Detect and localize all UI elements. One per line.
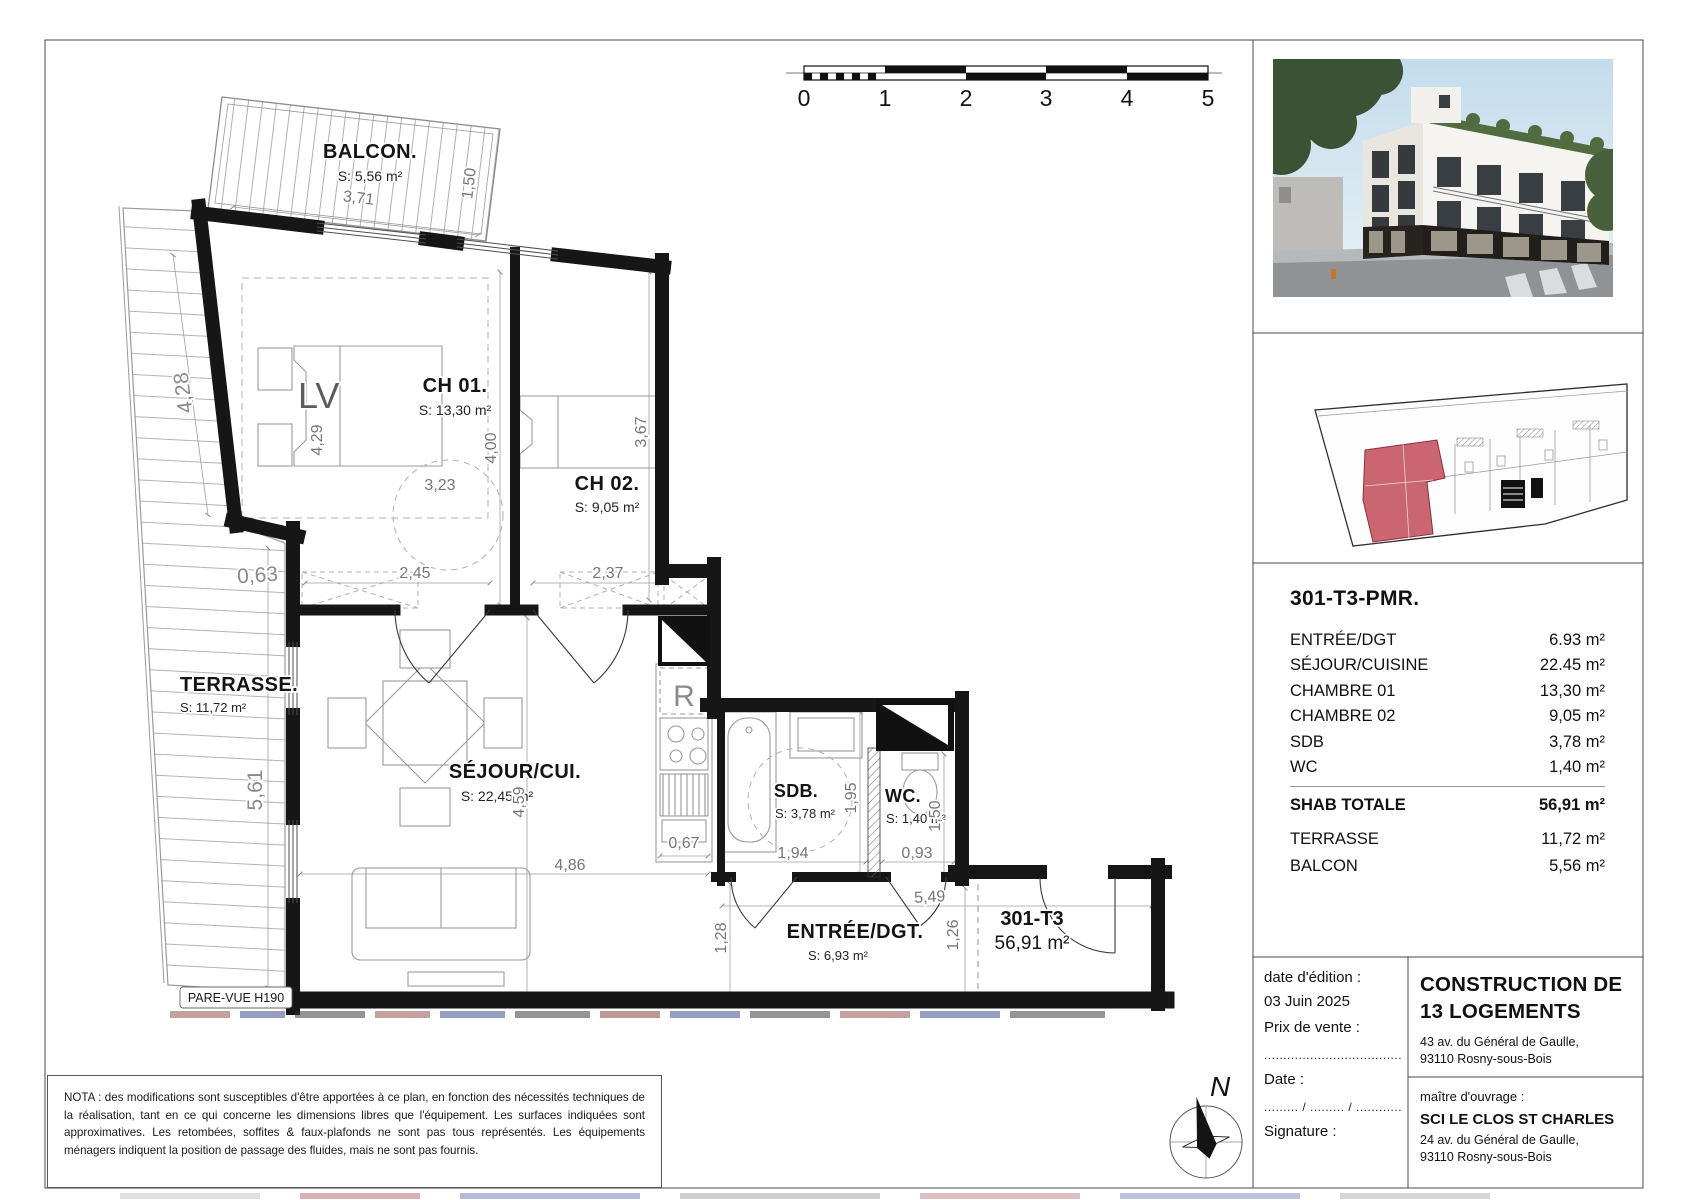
- key-plan-drawing: [1305, 382, 1630, 550]
- dim-terr-h: 5,61: [244, 770, 267, 811]
- dim-ch01-w: 3,23: [424, 477, 455, 494]
- project-title-line1: CONSTRUCTION DE: [1420, 971, 1635, 998]
- table-row: ENTRÉE/DGT 6.93 m²: [1290, 628, 1605, 653]
- room-area-ch01: S: 13,30 m²: [419, 402, 492, 418]
- dim-ch02-door: 2,37: [592, 565, 623, 582]
- dim-terr-jog: 0,63: [236, 563, 278, 589]
- titleblock-project: CONSTRUCTION DE 13 LOGEMENTS 43 av. du G…: [1408, 957, 1643, 1077]
- nota-box: NOTA : des modifications sont susceptibl…: [47, 1075, 662, 1188]
- area-table: 301-T3-PMR. ENTRÉE/DGT 6.93 m² SÉJOUR/CU…: [1253, 563, 1643, 957]
- room-label-balcon: BALCON.: [323, 141, 417, 163]
- table-divider: [1290, 786, 1605, 787]
- owner-address-line2: 93110 Rosny-sous-Bois: [1420, 1149, 1635, 1166]
- plan-sheet: 0 1 2 3 4 5: [0, 0, 1697, 1200]
- sdb-wc-partition: [868, 748, 880, 877]
- furniture: [258, 346, 938, 986]
- room-area-terrasse: S: 11,72 m²: [180, 700, 247, 715]
- owner-name: SCI LE CLOS ST CHARLES: [1420, 1111, 1635, 1128]
- building-photo: [1273, 59, 1613, 297]
- compass-needle: [1173, 1092, 1233, 1164]
- row-value: 9,05 m²: [1549, 704, 1605, 729]
- price-label: Prix de vente :: [1264, 1019, 1402, 1036]
- dim-kitchen: 0,67: [668, 835, 699, 852]
- key-plan: [1305, 382, 1630, 550]
- project-title-line2: 13 LOGEMENTS: [1420, 998, 1635, 1025]
- bathtub: [722, 712, 776, 852]
- project-address-line1: 43 av. du Général de Gaulle,: [1420, 1034, 1635, 1051]
- scale-tick-0: 0: [798, 85, 811, 111]
- north-compass: N: [1170, 1071, 1242, 1178]
- table-row: CHAMBRE 02 9,05 m²: [1290, 704, 1605, 729]
- dim-sdb-w: 1,94: [777, 845, 808, 862]
- scale-tick-3: 3: [1040, 85, 1053, 111]
- unit-area: 56,91 m²: [995, 933, 1070, 954]
- row-label: ENTRÉE/DGT: [1290, 628, 1396, 653]
- sofa: [352, 868, 530, 960]
- project-address-line2: 93110 Rosny-sous-Bois: [1420, 1051, 1635, 1068]
- scale-bar: 0 1 2 3 4 5: [786, 66, 1222, 111]
- table-row: SDB 3,78 m²: [1290, 730, 1605, 755]
- dim-ch02-h: 3,67: [633, 416, 650, 447]
- scale-tick-2: 2: [960, 85, 973, 111]
- total-value: 56,91 m²: [1539, 791, 1605, 819]
- dim-ch01-h: 4,00: [483, 432, 500, 463]
- row-label: CHAMBRE 02: [1290, 704, 1395, 729]
- titleblock-left: date d'édition : 03 Juin 2025 Prix de ve…: [1253, 957, 1408, 1188]
- row-label: SDB: [1290, 730, 1324, 755]
- room-area-sdb: S: 3,78 m²: [775, 806, 836, 821]
- room-label-terrasse: TERRASSE.: [180, 674, 298, 696]
- scale-tick-4: 4: [1121, 85, 1134, 111]
- row-value: 6.93 m²: [1549, 628, 1605, 653]
- edition-date-label: date d'édition :: [1264, 969, 1402, 986]
- dim-wc-w: 0,93: [901, 845, 932, 862]
- pare-vue-tag: PARE-VUE H190: [180, 987, 292, 1008]
- room-area-ch02: S: 9,05 m²: [575, 499, 640, 515]
- table-total-row: SHAB TOTALE 56,91 m²: [1290, 791, 1605, 819]
- table-row: TERRASSE 11,72 m²: [1290, 826, 1605, 853]
- room-label-ch02: CH 02.: [575, 473, 640, 495]
- owner-label: maître d'ouvrage :: [1420, 1089, 1635, 1104]
- table-extras: TERRASSE 11,72 m² BALCON 5,56 m²: [1290, 826, 1605, 880]
- dim-ch01-door: 2,45: [399, 565, 430, 582]
- walls: [198, 206, 1166, 1008]
- fridge-label: R: [673, 680, 695, 713]
- price-fill-line: .....................................: [1264, 1048, 1402, 1062]
- adjacent-floor-stripe: [170, 1011, 1105, 1018]
- scale-tick-5: 5: [1202, 85, 1215, 111]
- row-value: 5,56 m²: [1549, 853, 1605, 880]
- owner-address-line1: 24 av. du Général de Gaulle,: [1420, 1132, 1635, 1149]
- dim-sejour-h: 4,59: [511, 786, 528, 817]
- building-render: [1273, 59, 1613, 297]
- north-letter: N: [1210, 1071, 1231, 1102]
- row-label: CHAMBRE 01: [1290, 679, 1395, 704]
- row-label: WC: [1290, 755, 1318, 780]
- edition-date-value: 03 Juin 2025: [1264, 993, 1402, 1010]
- row-value: 22.45 m²: [1540, 653, 1605, 678]
- dim-entree-w: 5,49: [914, 888, 946, 907]
- table-row: BALCON 5,56 m²: [1290, 853, 1605, 880]
- signature-label: Signature :: [1264, 1123, 1402, 1140]
- unit-title: 301-T3-PMR.: [1290, 587, 1605, 611]
- room-label-ch01: CH 01.: [423, 375, 488, 397]
- total-label: SHAB TOTALE: [1290, 791, 1406, 819]
- row-value: 3,78 m²: [1549, 730, 1605, 755]
- dim-sdb-h: 1,95: [843, 782, 860, 813]
- dim-entree-h2: 1,26: [945, 919, 962, 950]
- sheet-bottom-stripe: [120, 1193, 1490, 1199]
- row-value: 13,30 m²: [1540, 679, 1605, 704]
- nota-text: NOTA : des modifications sont susceptibl…: [64, 1091, 645, 1157]
- scale-tick-1: 1: [879, 85, 892, 111]
- titleblock-owner: maître d'ouvrage : SCI LE CLOS ST CHARLE…: [1408, 1077, 1643, 1188]
- terrace-area: [119, 206, 285, 992]
- row-value: 11,72 m²: [1541, 826, 1605, 853]
- row-label: BALCON: [1290, 853, 1358, 880]
- date-fill-line: ......... / ......... / ............: [1264, 1100, 1402, 1114]
- dim-entree-h1: 1,28: [713, 922, 730, 953]
- unit-number: 301-T3: [1000, 908, 1063, 930]
- room-label-entree: ENTRÉE/DGT.: [787, 920, 924, 943]
- table-row: SÉJOUR/CUISINE 22.45 m²: [1290, 653, 1605, 678]
- room-label-sdb: SDB.: [774, 781, 818, 801]
- washbasin: [790, 704, 862, 758]
- room-label-sejour: SÉJOUR/CUI.: [449, 760, 581, 783]
- room-area-entree: S: 6,93 m²: [808, 948, 869, 963]
- dim-ch01-bed: 4,29: [309, 424, 326, 455]
- room-label-wc: WC.: [885, 786, 921, 806]
- dim-sejour-w: 4,86: [554, 857, 585, 874]
- table-row: CHAMBRE 01 13,30 m²: [1290, 679, 1605, 704]
- tv-console: [408, 972, 504, 986]
- row-value: 1,40 m²: [1549, 755, 1605, 780]
- room-area-balcon: S: 5,56 m²: [338, 168, 403, 184]
- row-label: TERRASSE: [1290, 826, 1379, 853]
- table-row: WC 1,40 m²: [1290, 755, 1605, 780]
- lv-label: LV: [298, 375, 339, 416]
- row-label: SÉJOUR/CUISINE: [1290, 653, 1428, 678]
- pare-vue-label: PARE-VUE H190: [188, 991, 284, 1005]
- dim-wc-h: 1,50: [927, 800, 944, 831]
- date-label: Date :: [1264, 1071, 1402, 1088]
- bed-double: [258, 346, 442, 466]
